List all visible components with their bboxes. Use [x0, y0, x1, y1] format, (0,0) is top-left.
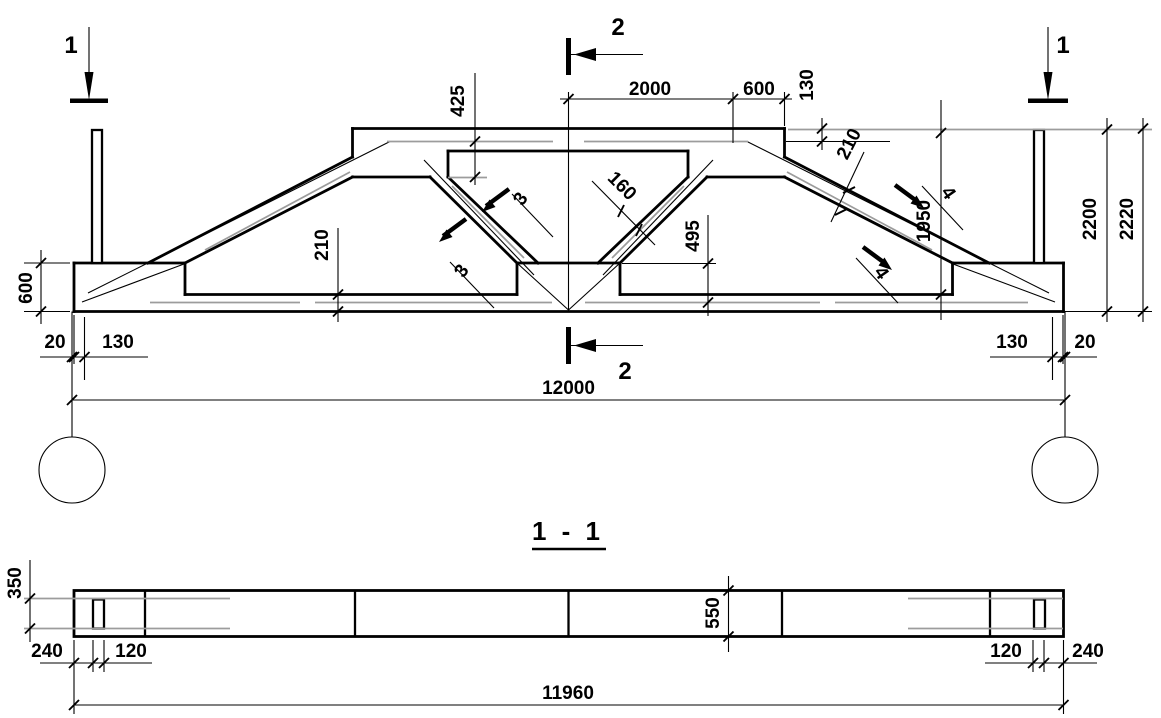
- section-1-1-view: 1 - 1 350: [5, 516, 1104, 714]
- dim-11960-text: 11960: [542, 683, 594, 704]
- cut-mark-3-lower-label: 3: [450, 261, 473, 282]
- dim-height-2220: 2220: [1117, 118, 1148, 322]
- dim-bottom-chord-thickness: 210: [312, 228, 343, 322]
- dim-member-length: 11960: [69, 640, 1069, 714]
- dim-550-text: 550: [703, 597, 724, 629]
- dim-web-offset: 495: [683, 215, 713, 316]
- section-title: 1 - 1: [532, 516, 606, 549]
- section-rebar-lines: [24, 599, 1063, 629]
- section-marker-2-top: 2: [566, 14, 643, 75]
- section-marker-2-bottom-label: 2: [618, 358, 631, 385]
- section-marker-2-top-label: 2: [611, 14, 624, 41]
- section-cut-bar: [566, 327, 571, 364]
- dim-top-end-segment: 600: [743, 79, 775, 100]
- dim-slope-thickness: 210: [831, 125, 866, 222]
- cut-mark-3-upper-label: 3: [509, 189, 532, 210]
- dim-495-text: 495: [683, 220, 704, 252]
- dim-130-right: 130: [996, 332, 1028, 353]
- dim-inner-height: 1950: [914, 100, 946, 320]
- section-marker-1-left: 1: [64, 27, 108, 103]
- elevation-view: 2000 600 130 425 160 4: [16, 14, 1152, 503]
- cut-mark-3-upper: 3: [482, 189, 553, 237]
- dim-top-chain: 2000 600: [560, 79, 792, 104]
- dim-top-step-text: 130: [797, 69, 818, 101]
- section-marker-1-right: 1: [1028, 27, 1070, 103]
- section-arrow-left-icon: [574, 339, 596, 352]
- dim-120-left: 120: [115, 641, 147, 662]
- dim-end-width: 350: [5, 560, 35, 642]
- dim-2220-text: 2220: [1117, 198, 1138, 240]
- grid-axis-bubble-right: [1032, 437, 1098, 503]
- section-division-lines: [145, 591, 990, 637]
- dim-height-2200: 2200: [1080, 118, 1112, 322]
- section-hole-right: [1034, 600, 1045, 629]
- dim-section-left-end: 240 120: [31, 640, 152, 672]
- cut-mark-4-upper-label: 4: [936, 183, 960, 204]
- dim-210-chord-text: 210: [312, 229, 333, 261]
- dim-120-right: 120: [990, 641, 1022, 662]
- section-arrow-down-icon: [1044, 72, 1053, 100]
- dim-160-text: 160: [603, 168, 640, 205]
- extension-lines: [24, 92, 1152, 380]
- dim-600-left-text: 600: [16, 272, 37, 304]
- dim-span: 12000: [67, 378, 1070, 405]
- dim-half-span-top: 2000: [629, 79, 671, 100]
- dim-20-left: 20: [44, 332, 65, 353]
- dim-130-left: 130: [102, 332, 134, 353]
- dim-240-left: 240: [31, 641, 63, 662]
- rebar-lines: [150, 130, 1152, 303]
- section-arrow-left-icon: [574, 48, 596, 61]
- member-centerlines: [82, 92, 1055, 312]
- grid-axis-bubble-left: [39, 437, 105, 503]
- section-cut-bar: [70, 99, 108, 104]
- dim-section-right-end: 120 240: [985, 640, 1104, 672]
- section-cut-bar: [566, 38, 571, 75]
- dim-12000-text: 12000: [542, 378, 595, 399]
- dim-1950-text: 1950: [914, 200, 935, 242]
- section-marker-1-left-label: 1: [64, 32, 77, 59]
- dim-240-right: 240: [1072, 641, 1104, 662]
- support-post-left: [92, 130, 102, 263]
- section-hole-left: [93, 600, 104, 629]
- support-post-right: [1034, 130, 1044, 263]
- section-title-text: 1 - 1: [532, 516, 604, 546]
- dim-top-step: 130: [797, 69, 827, 150]
- section-arrow-down-icon: [85, 72, 94, 100]
- section-cut-bar: [1028, 99, 1068, 104]
- dim-2200-text: 2200: [1080, 198, 1101, 240]
- dim-right-end: 130 20: [990, 332, 1097, 362]
- section-marker-1-right-label: 1: [1056, 32, 1069, 59]
- dim-web-thickness: 160: [592, 168, 655, 245]
- dim-20-right: 20: [1074, 332, 1095, 353]
- cut-mark-4-lower-label: 4: [869, 263, 893, 284]
- dim-middle-width: 550: [703, 576, 734, 652]
- dim-350-text: 350: [5, 567, 26, 599]
- truss-drawing-svg: 2000 600 130 425 160 4: [0, 0, 1161, 718]
- section-marker-2-bottom: 2: [566, 327, 643, 385]
- dim-425-text: 425: [448, 85, 469, 117]
- dim-left-end: 20 130: [40, 332, 148, 362]
- dim-support-height: 600: [16, 250, 46, 324]
- drawing-sheet: 2000 600 130 425 160 4: [0, 0, 1161, 718]
